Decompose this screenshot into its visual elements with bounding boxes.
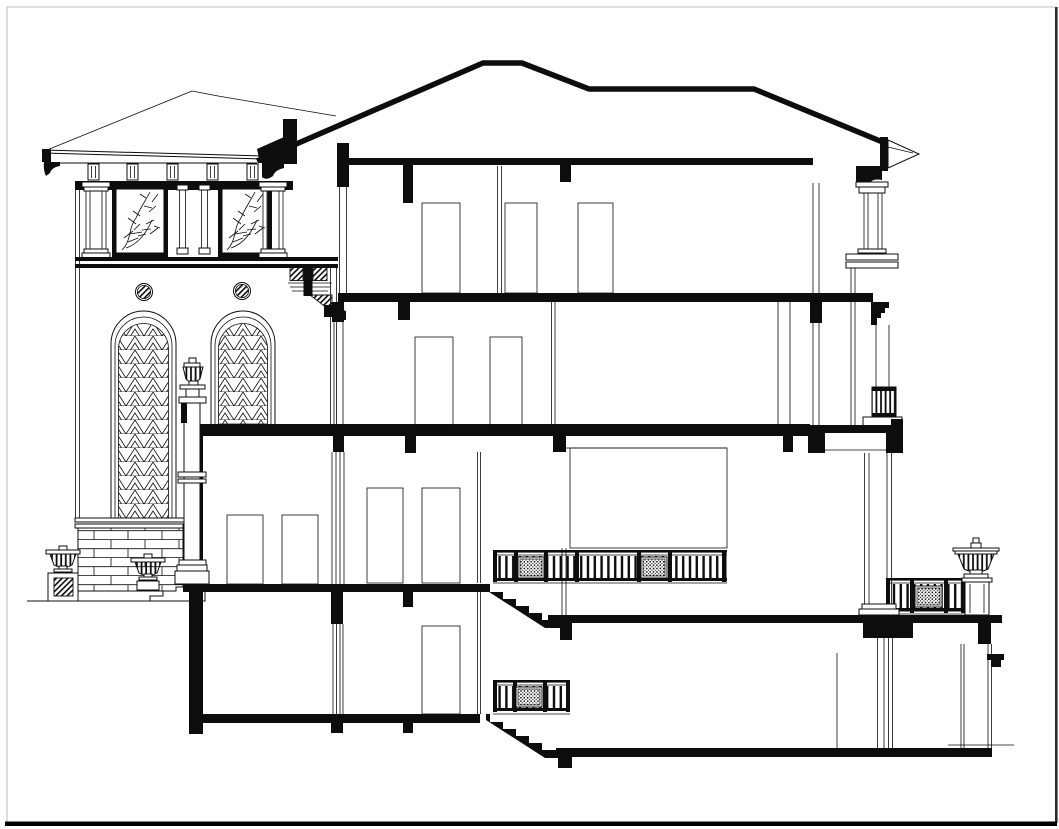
- medallion-left: [136, 284, 153, 301]
- frame-right-line: [1055, 7, 1058, 823]
- door-3f: [578, 203, 613, 293]
- frame-bottom-line: [5, 822, 1057, 827]
- right-eave: [856, 137, 919, 188]
- balcony-urn: [958, 554, 994, 572]
- door-1f-tower: [282, 515, 318, 584]
- section-wall-head: [337, 143, 349, 187]
- stair-flight-upper: [486, 584, 566, 628]
- railing-panel: [518, 557, 544, 578]
- door-3f: [505, 203, 537, 293]
- railing-panel: [641, 557, 667, 578]
- lattice-glazing: [219, 324, 268, 425]
- stairs: [486, 584, 566, 758]
- frieze-panel-left: [112, 185, 168, 257]
- ceiling-slab: [349, 158, 813, 165]
- urn-pedestal: [965, 582, 989, 615]
- main-roof-profile: [257, 63, 902, 161]
- tower-pilaster-pair: [177, 185, 210, 254]
- roof-junction-post: [283, 119, 297, 164]
- roof-valley-line: [218, 96, 336, 116]
- balcony-beam: [808, 425, 903, 453]
- terrace-slab: [548, 615, 1002, 623]
- arched-window-right: [211, 311, 275, 424]
- door-basement: [422, 626, 460, 714]
- balustrade-main: [493, 550, 727, 583]
- railing-panel: [915, 586, 942, 607]
- loggia-pier: [876, 325, 889, 387]
- architectural-section-drawing: [0, 0, 1059, 829]
- door-1f: [422, 488, 460, 583]
- planter-urn-left: [46, 546, 80, 601]
- fascia-left-bracket: [44, 162, 60, 176]
- interior-wall-lines: [478, 166, 838, 748]
- third-floor-slab: [338, 293, 873, 302]
- stair-flight-lower: [486, 714, 566, 758]
- eave-fascia: [880, 137, 888, 171]
- fascia-right-junction: [257, 137, 284, 163]
- hall-opening: [554, 448, 727, 548]
- second-floor-slab: [188, 424, 810, 436]
- balustrade-basement: [493, 680, 570, 714]
- tower-roof-hip: [47, 91, 218, 150]
- tower-fascia: [43, 150, 263, 163]
- door-2f: [490, 337, 522, 425]
- arched-window-left: [111, 311, 176, 518]
- left-wall-stack: [331, 187, 347, 733]
- medallion-right: [234, 283, 251, 300]
- tower-right-corner: [331, 268, 337, 424]
- tower-column-right: [259, 182, 287, 258]
- railing-panel: [516, 687, 542, 707]
- door-3f: [422, 203, 460, 293]
- door-1f: [367, 488, 403, 583]
- frieze-panel-right: [218, 185, 272, 257]
- cut-wall-stubs: [398, 165, 793, 768]
- scupper: [987, 654, 1004, 660]
- loggia-corbel: [871, 302, 889, 325]
- right-loggia: [808, 182, 903, 615]
- tower-left-wall-edge: [76, 182, 80, 518]
- lower-basement-slab: [556, 748, 992, 757]
- eave-tip: [888, 140, 919, 168]
- door-1f-tower: [227, 515, 263, 584]
- tower-column-left: [82, 182, 110, 258]
- basement-slab: [193, 714, 480, 723]
- door-2f: [415, 337, 453, 425]
- upper-column: [846, 182, 898, 268]
- lattice-glazing: [119, 324, 169, 519]
- right-foundation: [863, 617, 1014, 748]
